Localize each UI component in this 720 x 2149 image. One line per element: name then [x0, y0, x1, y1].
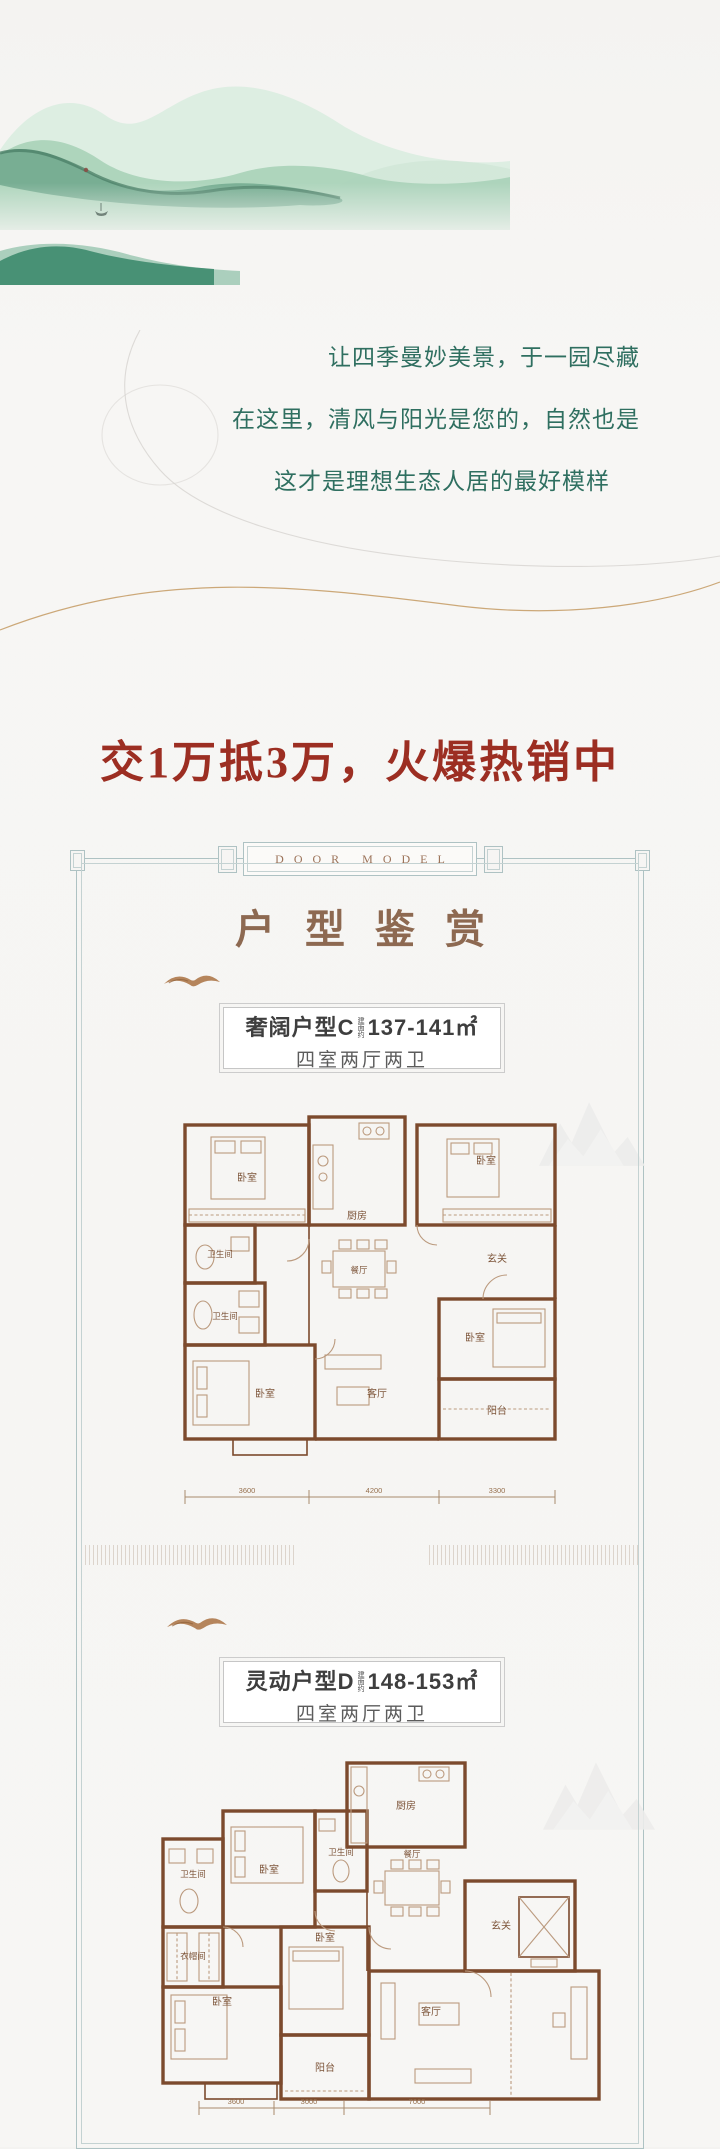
ink-mountain-painting-icon: [0, 35, 510, 285]
floorplan-d: 厨房 卧室 卫生间 卫生间 餐厅 玄关 衣帽间 卧室 卧室 客厅 阳台 3600…: [119, 1751, 659, 2116]
room-label: 客厅: [367, 1387, 387, 1400]
room-label: 厨房: [347, 1209, 367, 1222]
bird-icon: [163, 969, 221, 995]
plan-c-spec: 四室两厅两卫: [224, 1045, 500, 1072]
plan-d-area: 148-153㎡: [368, 1670, 479, 1694]
tagline-1: 让四季曼妙美景，于一园尽藏: [328, 338, 640, 372]
room-label: 卧室: [465, 1331, 485, 1344]
frame-corner-left-icon: [70, 850, 85, 871]
plaque-label: DOOR MODEL: [275, 852, 455, 866]
room-label: 卧室: [315, 1931, 335, 1944]
decorative-curves-icon: [0, 330, 720, 670]
plan-c-area-prefix: 建面约: [357, 1018, 366, 1039]
plan-d-name: 灵动户型D: [246, 1670, 355, 1694]
tagline-3: 这才是理想生态人居的最好模样: [274, 462, 610, 496]
dim-label: 3300: [489, 1486, 506, 1495]
plan-d-title-row: 灵动户型D建面约148-153㎡: [224, 1670, 500, 1694]
room-label: 阳台: [315, 2061, 335, 2074]
room-label: 卫生间: [212, 1311, 238, 1321]
room-label: 卫生间: [180, 1869, 206, 1879]
plan-c-title-row: 奢阔户型C建面约137-141㎡: [224, 1016, 500, 1040]
plaque-clip-right-icon: [484, 846, 503, 873]
separator-hatch-right: [429, 1545, 641, 1565]
section-title: 户型鉴赏: [77, 897, 643, 955]
room-label: 衣帽间: [180, 1951, 206, 1961]
plan-d-label-card: 灵动户型D建面约148-153㎡ 四室两厅两卫: [223, 1661, 501, 1723]
room-label: 卫生间: [328, 1847, 354, 1857]
promo-poster: 让四季曼妙美景，于一园尽藏 在这里，清风与阳光是您的，自然也是 这才是理想生态人…: [0, 0, 720, 2147]
dim-label: 4200: [366, 1486, 383, 1495]
room-label: 阳台: [487, 1404, 507, 1417]
room-label: 餐厅: [350, 1265, 368, 1275]
promo-headline: 交1万抵3万，火爆热销中: [0, 726, 720, 790]
room-label: 厨房: [396, 1799, 416, 1812]
dim-label: 3600: [239, 1486, 256, 1495]
room-label: 卧室: [259, 1863, 279, 1876]
room-label: 卫生间: [207, 1249, 233, 1259]
room-label: 卧室: [212, 1995, 232, 2008]
tagline-2: 在这里，清风与阳光是您的，自然也是: [232, 400, 640, 434]
room-label: 餐厅: [403, 1849, 421, 1859]
dim-label: 7000: [409, 2097, 426, 2106]
room-label: 玄关: [491, 1919, 511, 1932]
separator-hatch-left: [85, 1545, 297, 1565]
room-label: 卧室: [237, 1171, 257, 1184]
plan-c-label-card: 奢阔户型C建面约137-141㎡ 四室两厅两卫: [223, 1007, 501, 1069]
floorplan-frame: DOOR MODEL 户型鉴赏 奢阔户型C建面约137-141㎡ 四室两厅两卫: [76, 858, 644, 2149]
plaque-clip-left-icon: [218, 846, 237, 873]
plan-d-area-prefix: 建面约: [357, 1672, 366, 1693]
room-label: 卧室: [476, 1154, 496, 1167]
plan-c-name: 奢阔户型C: [246, 1016, 355, 1040]
room-label: 客厅: [421, 2005, 441, 2018]
room-label: 玄关: [487, 1252, 507, 1265]
floorplan-c: 卧室 厨房 卧室 卫生间 餐厅 卫生间 玄关 卧室 客厅 卧室 阳台 3600 …: [153, 1109, 583, 1514]
plan-c-area: 137-141㎡: [368, 1016, 479, 1040]
room-label: 卧室: [255, 1387, 275, 1400]
frame-corner-right-icon: [635, 850, 650, 871]
plan-d-spec: 四室两厅两卫: [224, 1699, 500, 1726]
bird-icon: [166, 1611, 228, 1639]
dim-label: 3000: [301, 2097, 318, 2106]
dim-label: 3600: [228, 2097, 245, 2106]
door-model-plaque: DOOR MODEL: [243, 842, 477, 876]
